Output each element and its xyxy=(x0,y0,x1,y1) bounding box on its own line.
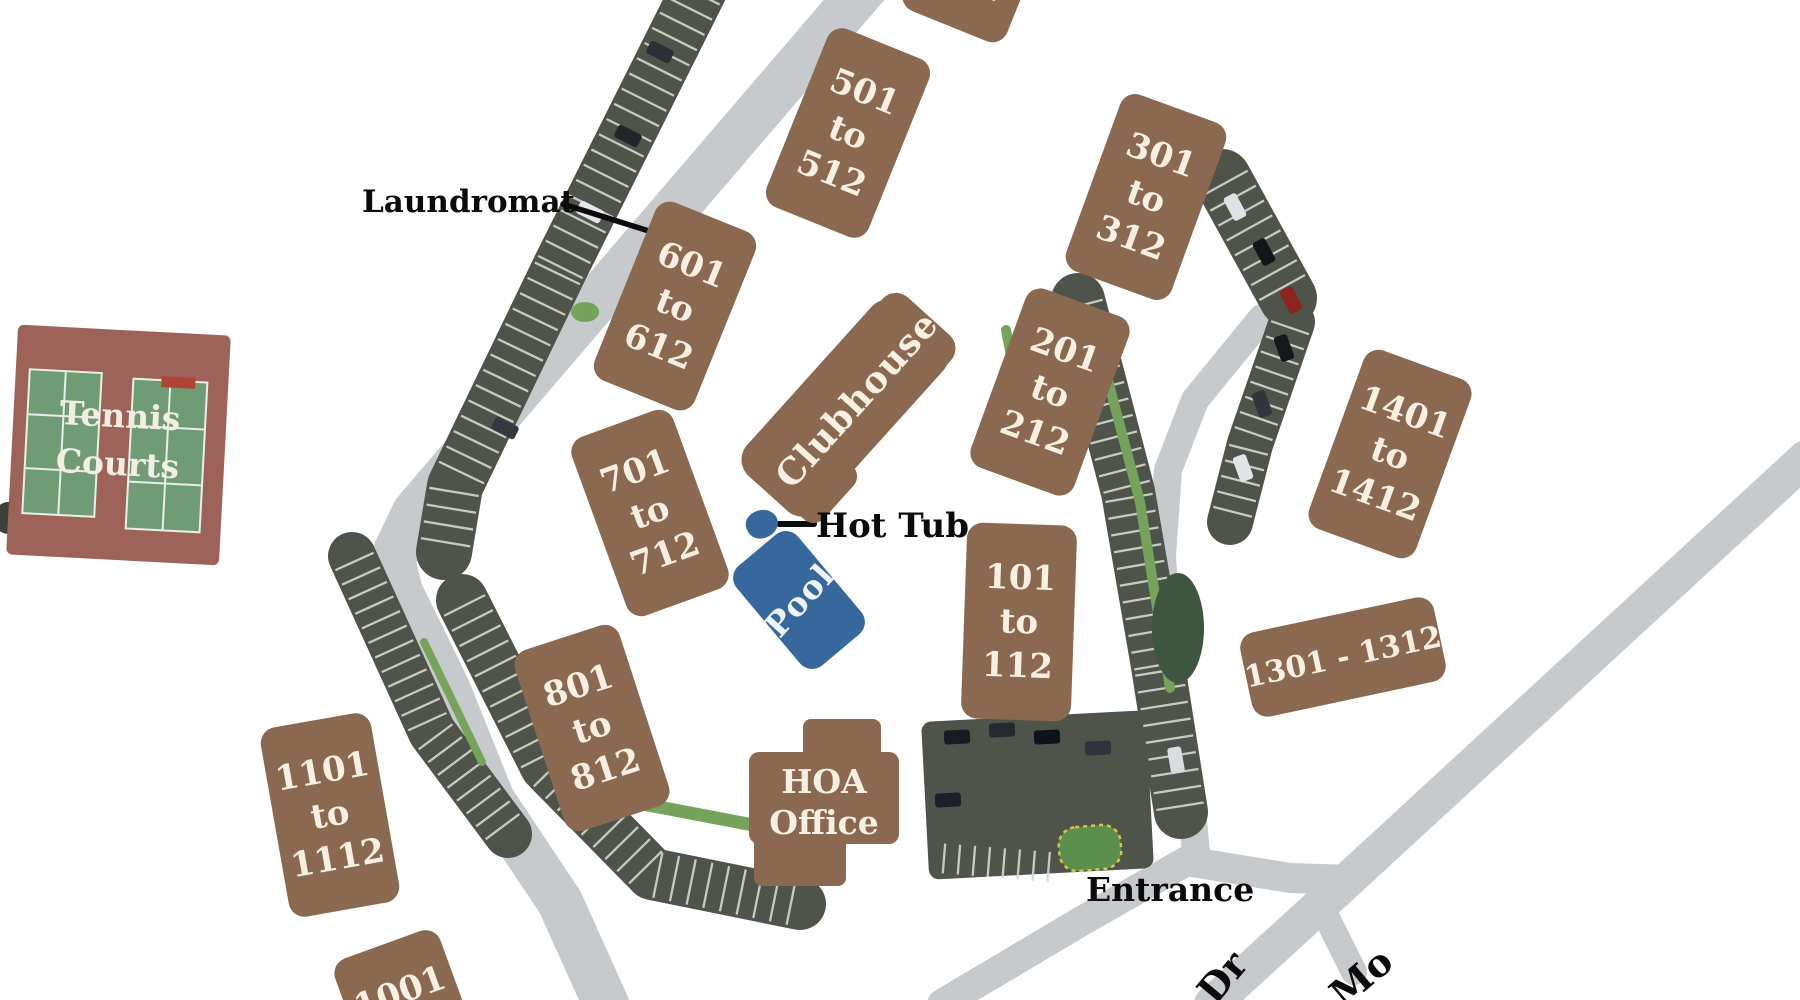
entrance-label: Entrance xyxy=(1086,870,1254,909)
building-label-line: 101 xyxy=(984,555,1056,602)
laundromat-label: Laundromat xyxy=(362,184,575,220)
building-label-line: 1112 xyxy=(287,829,388,889)
building-label-line: to xyxy=(999,599,1039,645)
hoa-office-building-top xyxy=(803,719,881,765)
building-label-line: 1301 - 1312 xyxy=(1241,617,1445,697)
hoa-office-label: HOA Office xyxy=(769,761,878,844)
building-label-line: 1001 xyxy=(348,956,452,1000)
building-label-line: to xyxy=(307,790,352,840)
tennis-label-line2: Courts xyxy=(55,437,181,491)
building-label-line: 412 xyxy=(927,0,1009,13)
tennis-label-line1: Tennis xyxy=(57,389,183,443)
tennis-court-red-patch xyxy=(161,376,196,389)
building-101-112: 101to112 xyxy=(961,522,1078,722)
building-label-line: 112 xyxy=(981,643,1053,690)
hoa-label-line2: Office xyxy=(769,802,878,843)
tennis-courts-label: Tennis Courts xyxy=(55,389,183,491)
tennis-courts-area: Tennis Courts xyxy=(6,325,231,566)
community-site-map: 401to412501to512601to612301to312201to212… xyxy=(0,0,1800,1000)
building-label-line: 1101 xyxy=(272,742,373,802)
hoa-label-line1: HOA xyxy=(769,761,878,802)
hot-tub-label: Hot Tub xyxy=(816,506,969,546)
